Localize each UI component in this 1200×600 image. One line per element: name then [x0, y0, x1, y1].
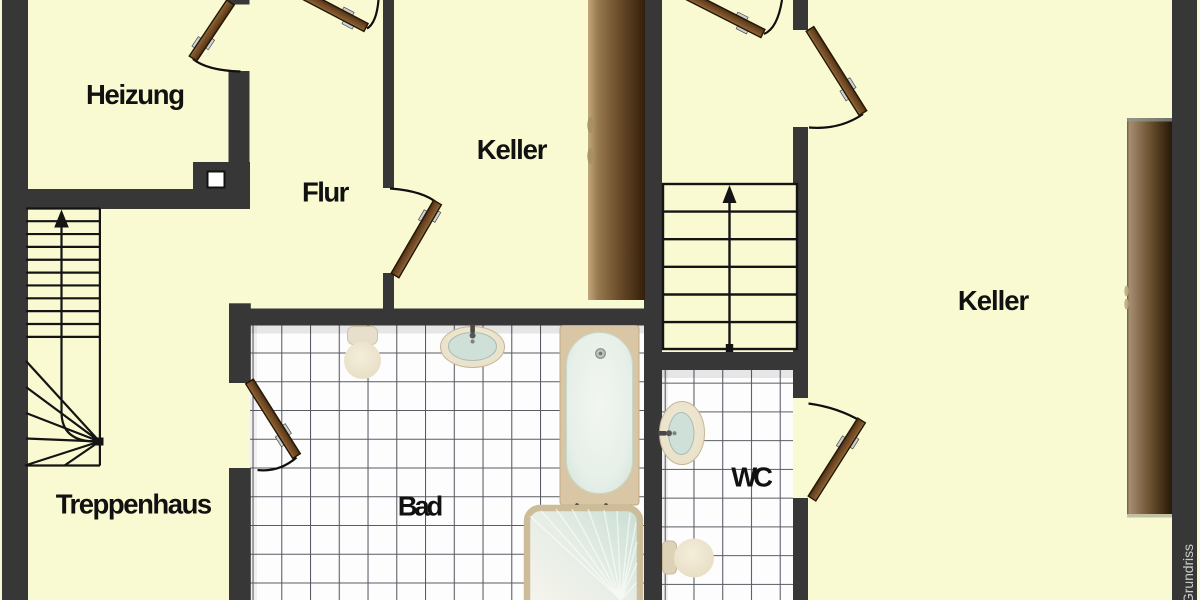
svg-text:Keller: Keller: [958, 285, 1030, 316]
svg-text:Heizung: Heizung: [86, 79, 185, 110]
svg-text:Keller: Keller: [477, 134, 548, 165]
svg-text:Flur: Flur: [302, 177, 350, 208]
svg-text:Bad: Bad: [398, 491, 444, 522]
svg-text:Grundriss: Grundriss: [1180, 544, 1196, 600]
svg-text:Treppenhaus: Treppenhaus: [56, 489, 213, 520]
svg-text:WC: WC: [731, 462, 773, 493]
